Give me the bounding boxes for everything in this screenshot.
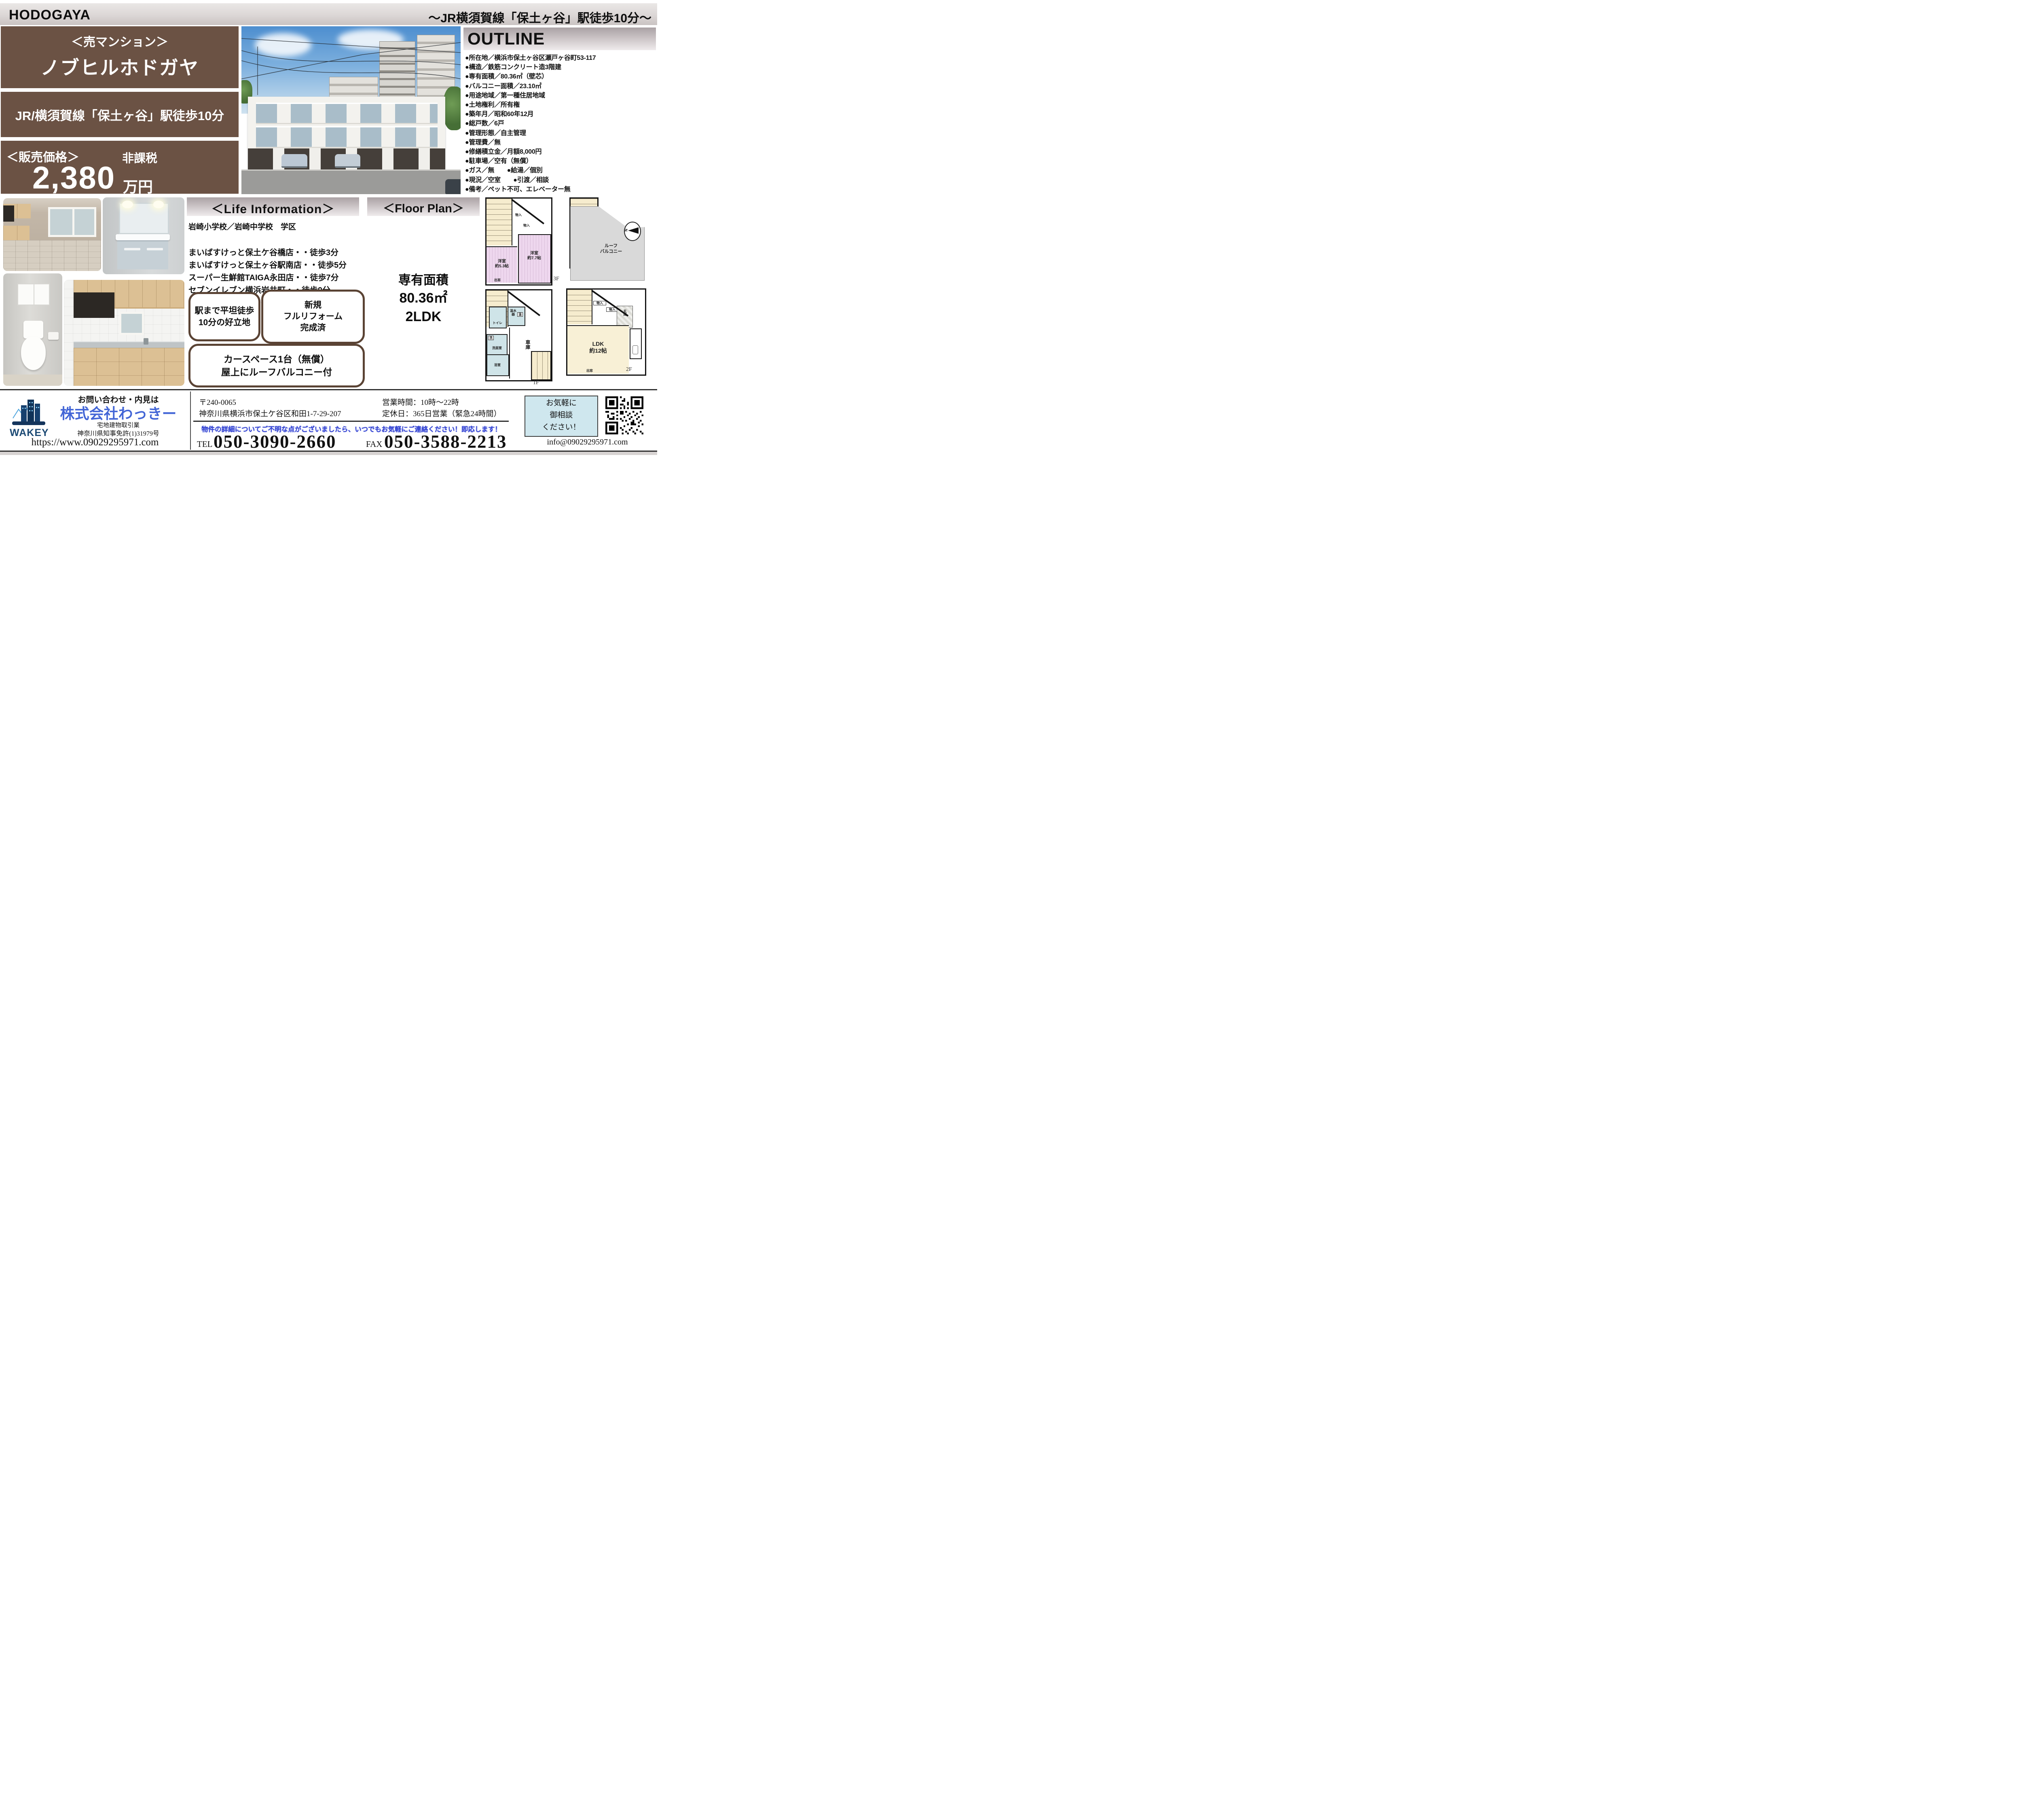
bath-label: 浴室 — [491, 363, 503, 367]
outline-item: ●所在地／横浜市保土ヶ谷区瀬戸ヶ谷町53-117 — [465, 53, 656, 63]
wakey-logo — [11, 397, 46, 426]
room-label: 洋室 — [530, 251, 538, 256]
outline-item: ●築年月／昭和60年12月 — [465, 110, 656, 119]
washroom-label: 洗面室 — [490, 346, 504, 350]
feature-box-renovation: 新規 フルリフォーム 完成済 — [261, 290, 365, 344]
page-bottom-strip — [0, 452, 657, 455]
kitchen-lower-cabinets — [74, 348, 184, 386]
window-mullion — [72, 209, 74, 235]
window-row — [256, 126, 438, 148]
feature-line: 10分の好立地 — [190, 317, 258, 328]
consult-line: 御相談 — [525, 409, 597, 421]
outline-item: ●ガス／無 ●給湯／個別 — [465, 166, 656, 175]
bay-window-label: 出窓 — [584, 369, 595, 372]
footer-top-rule — [0, 389, 657, 390]
life-info-title: ＜Life Information＞ — [187, 197, 359, 217]
heater-label: 温水器 — [509, 309, 518, 316]
photo-washbasin — [103, 197, 184, 274]
kitchen-window — [119, 312, 144, 335]
tax-note: 非課税 — [122, 149, 157, 166]
outline-item: ●用途地域／第一種住居地域 — [465, 91, 656, 100]
consult-line: お気軽に — [525, 397, 597, 409]
toilet-tank — [23, 321, 44, 339]
qr-code — [605, 396, 643, 434]
access-text: JR/横須賀線「保土ヶ谷」駅徒歩10分 — [15, 106, 224, 124]
paper-holder — [48, 332, 59, 340]
vanity-light — [122, 201, 133, 208]
wood-floor — [3, 240, 101, 271]
compass-n: N — [624, 229, 628, 232]
floor-plan-drawings: 物入 物入 洋室 約5.3帖 洋室 約7.7帖 出窓 3F — [465, 197, 657, 387]
business-hours: 営業時間：10時～22時 — [382, 396, 459, 407]
wash-label: 洗 — [488, 336, 494, 340]
heater-mark: 温 — [517, 312, 523, 317]
feature-line: 完成済 — [263, 322, 363, 334]
access-box: JR/横須賀線「保土ヶ谷」駅徒歩10分 — [1, 92, 239, 137]
floor-plan-3f: 物入 物入 洋室 約5.3帖 洋室 約7.7帖 出窓 — [485, 197, 552, 286]
layout-type: 2LDK — [367, 307, 480, 326]
parked-car — [335, 154, 360, 167]
closet-label: 物入 — [512, 213, 525, 217]
area-title: 専有面積 — [367, 272, 480, 289]
garage-label: 車庫 — [524, 340, 530, 349]
feature-line: 新規 — [263, 300, 363, 311]
sink — [632, 345, 638, 354]
consult-line: ください！ — [525, 421, 597, 434]
wall-cupboard — [17, 284, 50, 305]
area-summary: 専有面積 80.36㎡ 2LDK — [367, 272, 480, 326]
outline-item: ●駐車場／空有（無償） — [465, 157, 656, 166]
outline-item: ●修繕積立金／月額8,000円 — [465, 147, 656, 157]
kitchen-unit — [630, 328, 642, 359]
outline-item: ●土地権利／所有権 — [465, 100, 656, 110]
toilet-label: トイレ — [491, 321, 504, 325]
closet-label: 物入 — [593, 301, 606, 305]
road — [241, 169, 461, 194]
bathroom: 浴室 — [486, 354, 509, 376]
tel-label: TEL — [197, 439, 212, 449]
feature-box-location: 駅まで平坦徒歩 10分の好立地 — [188, 292, 260, 341]
license-number: 神奈川県知事免許(1)31979号 — [49, 428, 188, 438]
compass-icon: N — [624, 222, 641, 241]
postal-code: 〒240-0065 — [199, 396, 236, 407]
faucet — [144, 338, 148, 345]
floor-plan-2f: 物入 物入 玄関 LDK 約12帖 出窓 — [566, 288, 646, 376]
bedroom-1: 洋室 約5.3帖 — [486, 246, 517, 283]
consult-box: お気軽に 御相談 ください！ — [525, 396, 598, 437]
holiday-note: 定休日：365日営業（緊急24時間） — [382, 408, 501, 419]
feature-line: フルリフォーム — [263, 311, 363, 322]
feature-line: 駅まで平坦徒歩 — [190, 305, 258, 317]
floor-plan-1f: トイレ 温水器 温 洗 洗面室 浴室 車庫 — [485, 289, 552, 381]
heater-room: 温水器 温 — [508, 307, 525, 326]
roof-balcony: ルーフ バルコニー — [570, 206, 645, 281]
outline-title: OUTLINE — [467, 29, 545, 49]
ldk-label: LDK — [592, 341, 604, 347]
area-value: 80.36㎡ — [367, 289, 480, 307]
fax-number: 050-3588-2213 — [384, 431, 507, 452]
nearby-place: スーパー生鮮館TAIGA永田店・・徒歩7分 — [188, 272, 347, 284]
bedroom-2: 洋室 約7.7帖 — [518, 234, 551, 284]
property-name: ノブヒルホドガヤ — [1, 52, 239, 80]
room-size: 約7.7帖 — [527, 256, 541, 260]
company-name: 株式会社わっきー — [49, 402, 188, 423]
outline-item: ●専有面積／80.36㎡（壁芯） — [465, 72, 656, 81]
range-hood — [3, 205, 14, 222]
school-district: 岩崎小学校／岩崎中学校 学区 — [188, 221, 296, 232]
roof-balcony-label: ルーフ — [605, 243, 618, 248]
outline-item: ●備考／ペット不可、エレベーター無 — [465, 185, 656, 194]
email-address: info@09029295971.com — [520, 438, 655, 447]
parked-car — [445, 179, 461, 194]
building-photo — [241, 26, 461, 194]
outline-item: ●構造／鉄筋コンクリート造3階建 — [465, 63, 656, 72]
station-access-note: ～JR横須賀線「保土ヶ谷」駅徒歩10分～ — [428, 8, 651, 26]
cabinet-handle — [147, 248, 163, 250]
price-value: 2,380 — [32, 162, 115, 193]
feature-line: カースペース1台（無償） — [190, 353, 363, 366]
header-bar: HODOGAYA ～JR横須賀線「保土ヶ谷」駅徒歩10分～ — [0, 3, 657, 25]
outline-list: ●所在地／横浜市保土ヶ谷区瀬戸ヶ谷町53-117 ●構造／鉄筋コンクリート造3階… — [465, 53, 656, 194]
washroom: 洗 洗面室 — [486, 334, 508, 355]
basin-cabinet — [117, 240, 168, 269]
toilet-room: トイレ — [489, 307, 507, 328]
ldk-size: 約12帖 — [589, 347, 607, 354]
feature-line: 屋上にルーフバルコニー付 — [190, 366, 363, 379]
roof-balcony-label: バルコニー — [600, 249, 622, 254]
toilet-bowl — [21, 336, 46, 370]
range-hood — [74, 292, 114, 318]
living-window — [48, 207, 96, 237]
cabinet-handle — [124, 248, 140, 250]
bay-window-label: 出窓 — [492, 278, 503, 282]
price-unit: 万円 — [123, 175, 153, 197]
property-type-label: ＜売マンション＞ — [1, 32, 239, 50]
outline-item: ●管理費／無 — [465, 138, 656, 147]
floor-tag-3f: 3F — [553, 276, 559, 282]
floor-tag-2f: 2F — [626, 366, 632, 373]
room-size: 約5.3帖 — [495, 264, 509, 269]
footer-mid-rule — [193, 421, 509, 422]
office-address: 神奈川県横浜市保土ケ谷区和田1-7-29-207 — [199, 408, 341, 419]
floor-plan-header-bar: ＜Floor Plan＞ — [367, 197, 480, 216]
floor-tag-1f: 1F — [533, 380, 539, 386]
stairs-3f — [486, 199, 512, 245]
angled-wall — [511, 199, 544, 224]
toilet-floor — [3, 375, 62, 386]
fax-label: FAX — [366, 439, 382, 449]
outline-item: ●バルコニー面積／23.10㎡ — [465, 82, 656, 91]
flyer-page: HODOGAYA ～JR横須賀線「保土ヶ谷」駅徒歩10分～ ＜売マンション＞ ノ… — [0, 0, 657, 455]
price-box: ＜販売価格＞ 非課税 2,380 万円 — [1, 141, 239, 194]
photo-toilet — [3, 273, 62, 386]
room-label: 洋室 — [498, 259, 506, 264]
basin-counter — [116, 234, 169, 240]
tel-number: 050-3090-2660 — [214, 431, 336, 452]
stairs-2f — [567, 290, 592, 324]
photo-living-room — [3, 198, 101, 271]
outline-item: ●現況／空室 ●引渡／相談 — [465, 176, 656, 185]
feature-box-carspace: カースペース1台（無償） 屋上にルーフバルコニー付 — [188, 344, 365, 387]
outline-item: ●管理形態／自主管理 — [465, 129, 656, 138]
brand-title: HODOGAYA — [9, 7, 91, 23]
nearby-place: まいばすけっと保土ヶ谷駅南店・・徒歩5分 — [188, 259, 347, 272]
outline-item: ●総戸数／6戸 — [465, 119, 656, 128]
footer-divider — [190, 392, 191, 450]
ldk-room: LDK 約12帖 — [567, 325, 629, 374]
life-info-header-bar: ＜Life Information＞ — [187, 197, 359, 216]
property-name-box: ＜売マンション＞ ノブヒルホドガヤ — [1, 26, 239, 88]
exterior-stairs — [531, 351, 551, 380]
photo-kitchen — [64, 280, 184, 386]
closet-label: 物入 — [520, 224, 533, 227]
vanity-light — [153, 201, 164, 208]
nearby-place: まいばすけっと保土ケ谷橋店・・徒歩3分 — [188, 247, 347, 259]
parked-car — [281, 154, 307, 167]
website-url: https://www.09029295971.com — [2, 437, 188, 448]
power-lines-icon — [241, 26, 461, 127]
compass-needle — [628, 227, 639, 234]
floor-plan-title: ＜Floor Plan＞ — [367, 197, 480, 216]
